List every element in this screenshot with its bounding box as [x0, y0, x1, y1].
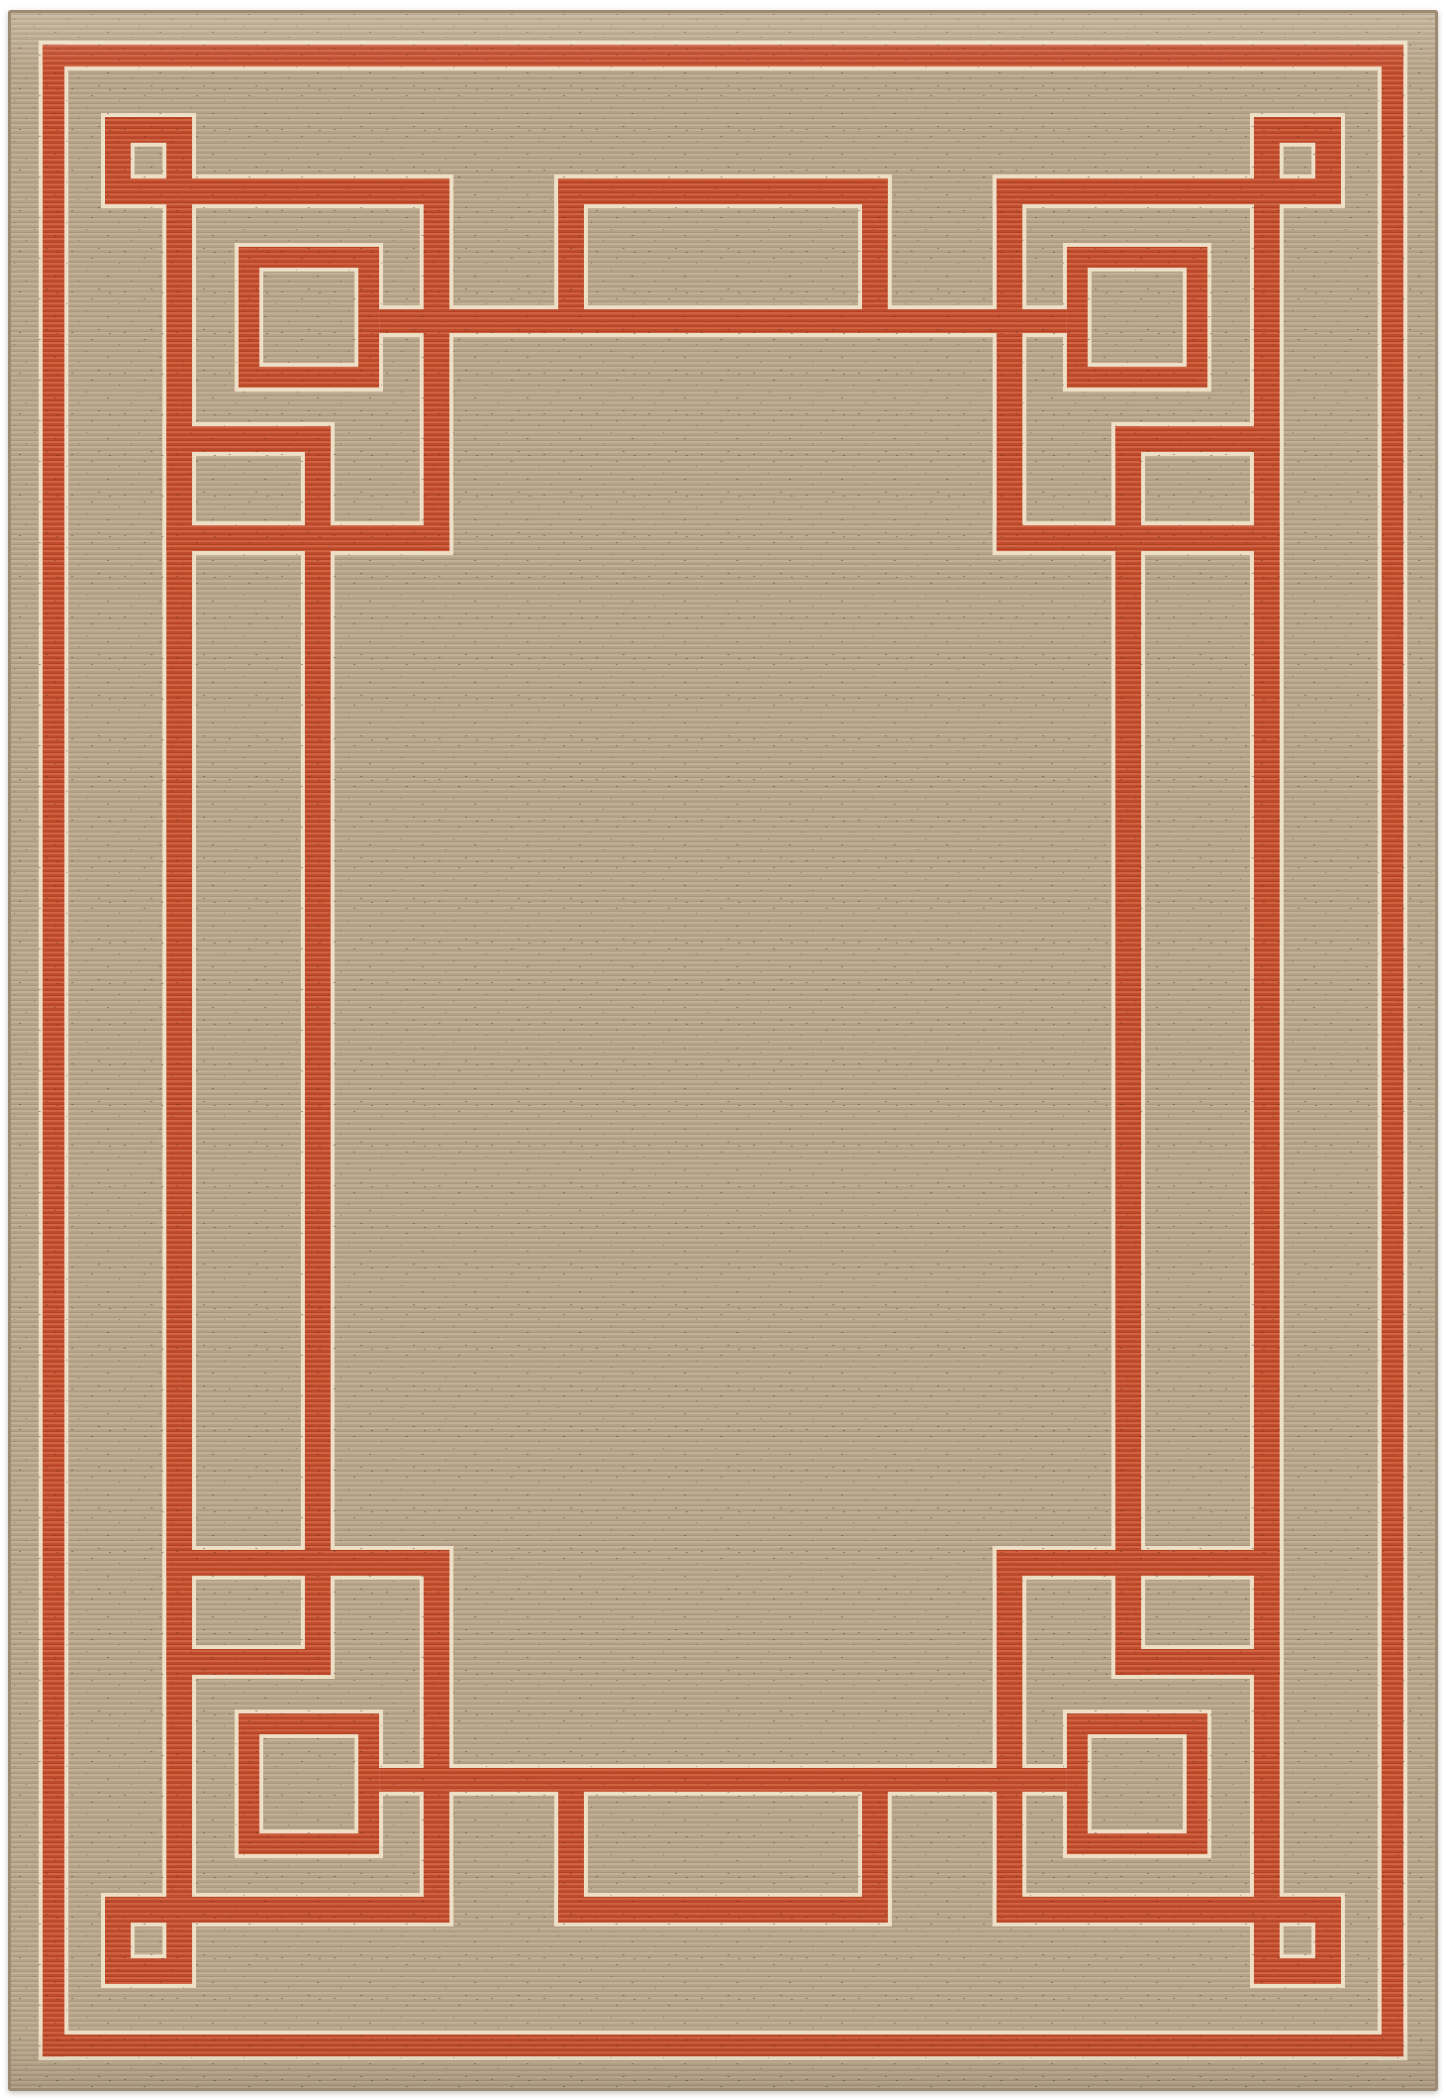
rug-pattern-graphic	[8, 10, 1438, 2091]
product-photo	[0, 0, 1445, 2100]
rug	[8, 10, 1438, 2091]
